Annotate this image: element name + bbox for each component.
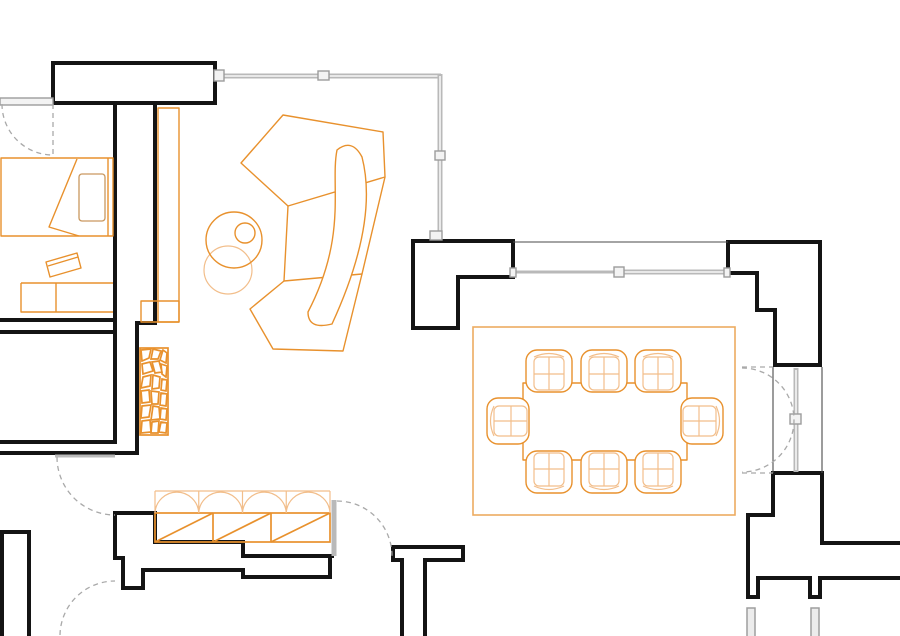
desk [21,283,113,312]
glazing-mullion-east [435,151,445,160]
dining-chair-5 [581,451,627,493]
bed-frame [1,158,113,236]
column-bar-bottom-right [811,608,819,636]
wall-dining-west [413,241,513,328]
glazing-mullion-dining [614,267,624,277]
console-base [141,301,179,322]
door-bottomleft-arc [60,581,115,635]
wall-entry-header-bar [53,63,215,103]
closet-door-arcs [155,491,330,513]
door-bedroom-arc [2,104,53,155]
door-double-top-arc [742,368,794,420]
sofa-chaise [308,145,366,325]
plant-circle [235,223,255,243]
glazing-tick-dining-right [724,268,730,277]
fireplace-mosaic-cells [141,349,167,433]
bed-pillow [79,174,105,221]
glazing-connector-southeast [430,231,442,240]
closet-bay-diagonals [155,513,330,542]
column-bar-bottom-left [747,608,755,636]
dining-chair-6 [635,451,681,493]
desk-paper [46,253,81,277]
wall-closet-top-profile [115,513,332,556]
dining-chair-1 [526,350,572,392]
dining-chair-8 [681,398,723,444]
stool-circle [204,246,252,294]
wall-closet-bottom-profile [115,513,330,588]
wall-dining-east-lower [748,473,900,597]
side-table-circle [206,212,262,268]
glazing-mullion-north [318,71,329,80]
dining-chair-2 [581,350,627,392]
door-double-bottom-arc [742,420,794,472]
bed-blanket-fold [49,159,79,236]
wall-bottom-left-band [2,532,29,636]
dining-chair-7 [487,398,529,444]
floor-plan [0,0,900,636]
dining-chair-4 [526,451,572,493]
dining-table [523,383,687,460]
dining-chair-3 [635,350,681,392]
floor-plan-canvas [0,0,900,636]
glazing-tick-dining-left [510,268,516,277]
wall-dining-east-upper [728,242,820,365]
door-closet-arc [337,501,392,556]
console-band [158,108,179,322]
window-bedroom [0,98,53,105]
door-handle-right [790,414,801,424]
door-lowerroom-arc [57,457,115,515]
wall-center-pier [393,547,463,636]
glazing-connector-northwest [214,70,224,81]
